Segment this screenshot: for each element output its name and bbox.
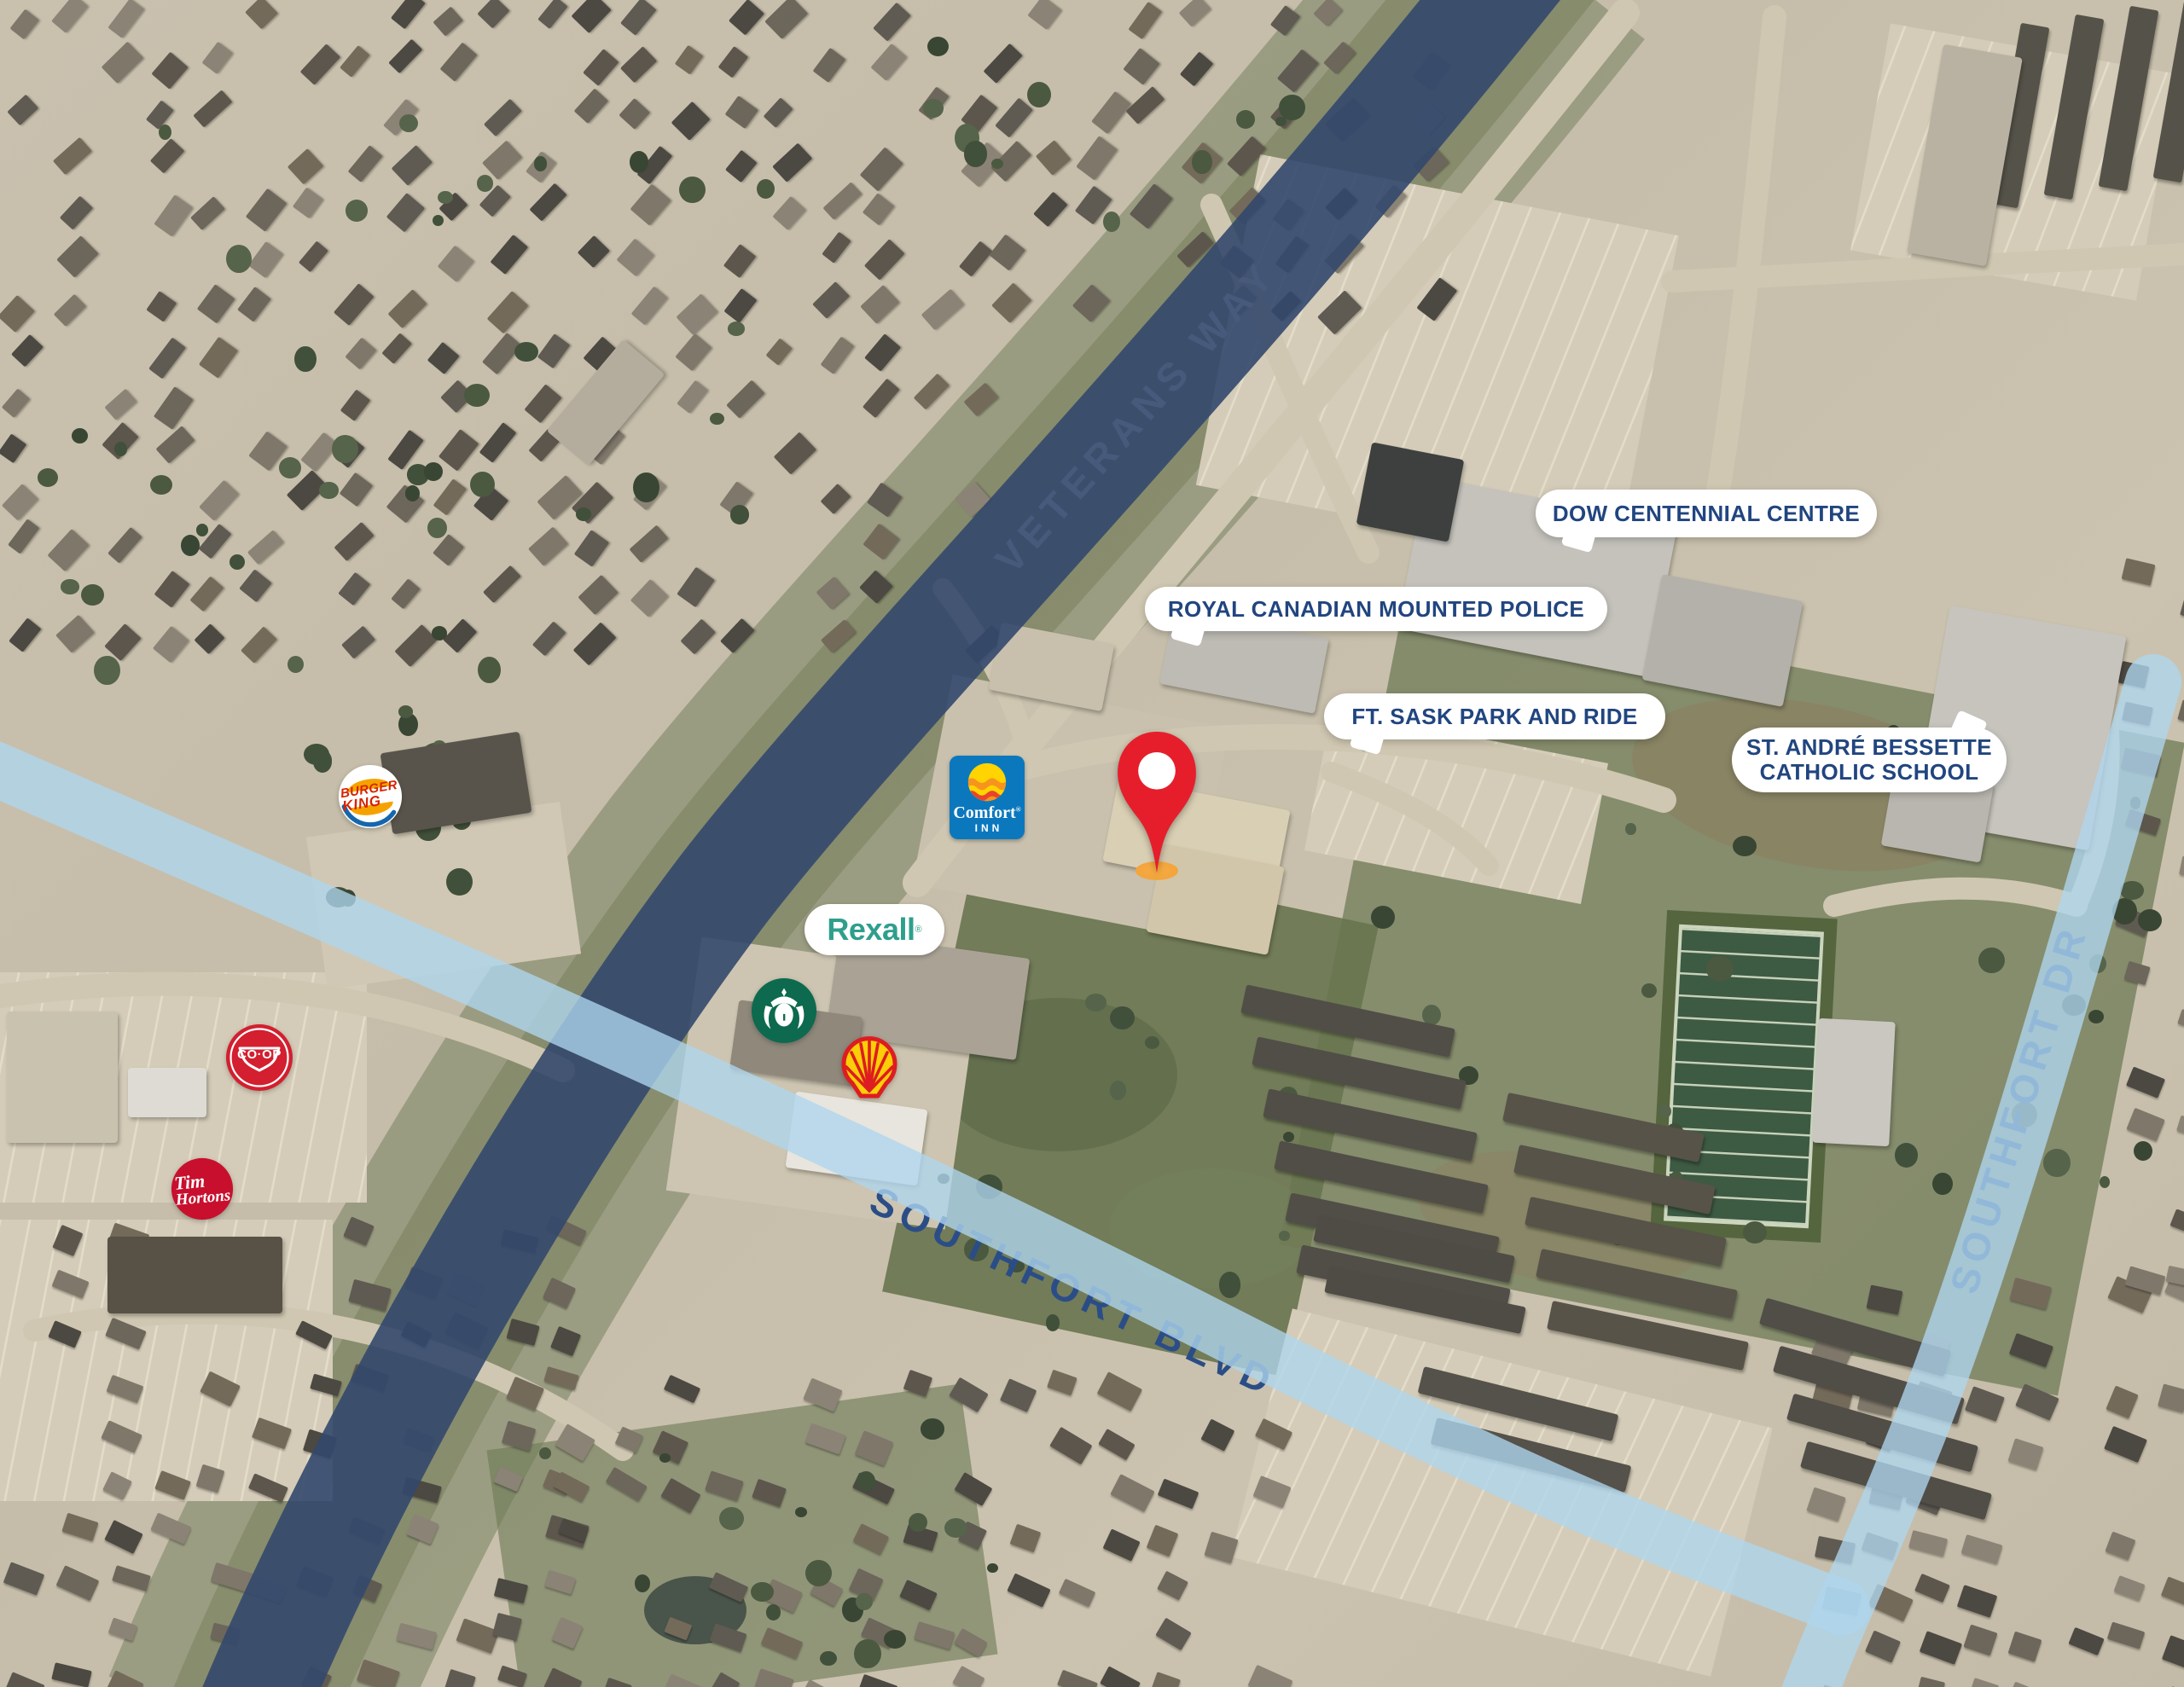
- registered-mark: ®: [915, 925, 921, 935]
- callout-dow-centennial-centre: DOW CENTENNIAL CENTRE: [1536, 490, 1877, 537]
- callout-royal-canadian-mounted-police: ROYAL CANADIAN MOUNTED POLICE: [1145, 587, 1607, 631]
- callout-label: ST. ANDRÉ BESSETTE: [1746, 735, 1992, 760]
- comfort-sun-icon: [967, 762, 1008, 803]
- callout-label: FT. SASK PARK AND RIDE: [1351, 704, 1637, 730]
- southfort-blvd-road: [0, 749, 1843, 1608]
- callout-label: ROYAL CANADIAN MOUNTED POLICE: [1168, 596, 1584, 623]
- callout-st-andre-bessette-catholic-school: ST. ANDRÉ BESSETTE CATHOLIC SCHOOL: [1732, 728, 2007, 792]
- callout-label: CATHOLIC SCHOOL: [1760, 760, 1979, 785]
- shell-pecten-icon: [835, 1035, 903, 1103]
- rexall-label: Rexall: [827, 912, 915, 948]
- veterans-way-road: [243, 0, 1531, 1687]
- comfort-inn-label: INN: [972, 822, 1003, 834]
- starbucks-logo: [751, 977, 817, 1044]
- location-pin: [1109, 727, 1205, 882]
- callout-ft-sask-park-and-ride: FT. SASK PARK AND RIDE: [1324, 693, 1665, 739]
- comfort-inn-logo: Comfort® INN: [950, 756, 1025, 839]
- aerial-map: VETERANS WAY SOUTHFORT BLVD SOUTHFORT DR…: [0, 0, 2184, 1687]
- registered-mark: ®: [1016, 805, 1021, 813]
- burger-king-logo: BURGER KING: [337, 763, 404, 830]
- southfort-dr-road: [1798, 682, 2153, 1687]
- shell-logo: [835, 1035, 903, 1103]
- coop-logo: CO·OP: [225, 1023, 293, 1092]
- starbucks-siren-icon: [751, 977, 817, 1044]
- roads-layer: [0, 0, 2184, 1687]
- tim-hortons-logo: Tim Hortons: [171, 1157, 234, 1220]
- rexall-logo: Rexall®: [804, 904, 944, 955]
- callout-label: DOW CENTENNIAL CENTRE: [1553, 501, 1860, 527]
- comfort-inn-label: Comfort: [953, 803, 1015, 822]
